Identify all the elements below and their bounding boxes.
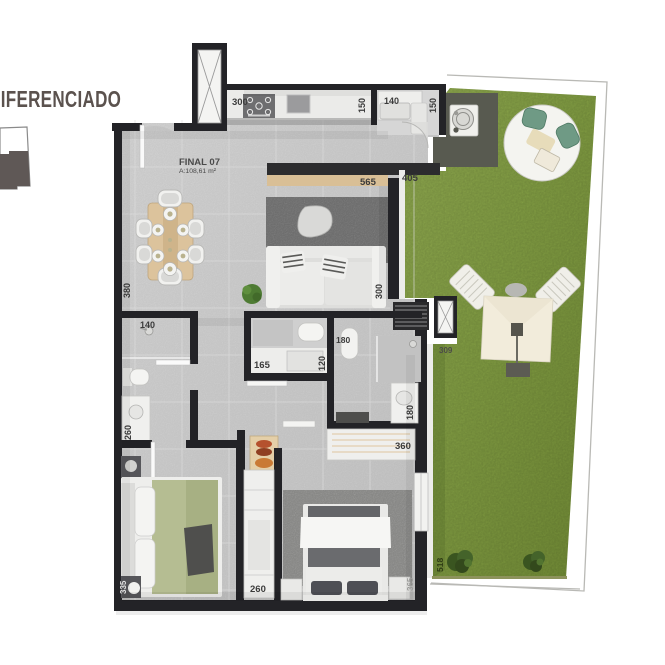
svg-text:150: 150 bbox=[357, 98, 367, 113]
svg-text:300: 300 bbox=[374, 284, 384, 299]
svg-text:300: 300 bbox=[232, 97, 248, 108]
svg-text:140: 140 bbox=[140, 320, 155, 330]
svg-text:518: 518 bbox=[435, 558, 445, 572]
svg-text:360: 360 bbox=[395, 441, 411, 452]
svg-text:165: 165 bbox=[254, 360, 271, 371]
svg-text:120: 120 bbox=[317, 356, 327, 371]
svg-text:309: 309 bbox=[439, 346, 453, 355]
svg-text:140: 140 bbox=[384, 96, 399, 106]
svg-text:260: 260 bbox=[123, 425, 133, 440]
svg-text:260: 260 bbox=[250, 584, 266, 595]
svg-text:FINAL 07: FINAL 07 bbox=[179, 157, 220, 168]
svg-text:565: 565 bbox=[360, 177, 377, 188]
svg-text:180: 180 bbox=[405, 405, 415, 420]
svg-text:A:108,61 m²: A:108,61 m² bbox=[179, 168, 217, 175]
svg-text:DIFERENCIADO: DIFERENCIADO bbox=[0, 88, 121, 113]
svg-text:380: 380 bbox=[122, 283, 132, 298]
svg-text:335: 335 bbox=[119, 580, 128, 594]
svg-text:180: 180 bbox=[336, 335, 350, 345]
svg-text:150: 150 bbox=[428, 98, 438, 113]
svg-text:365: 365 bbox=[406, 577, 415, 591]
svg-text:405: 405 bbox=[402, 173, 419, 184]
